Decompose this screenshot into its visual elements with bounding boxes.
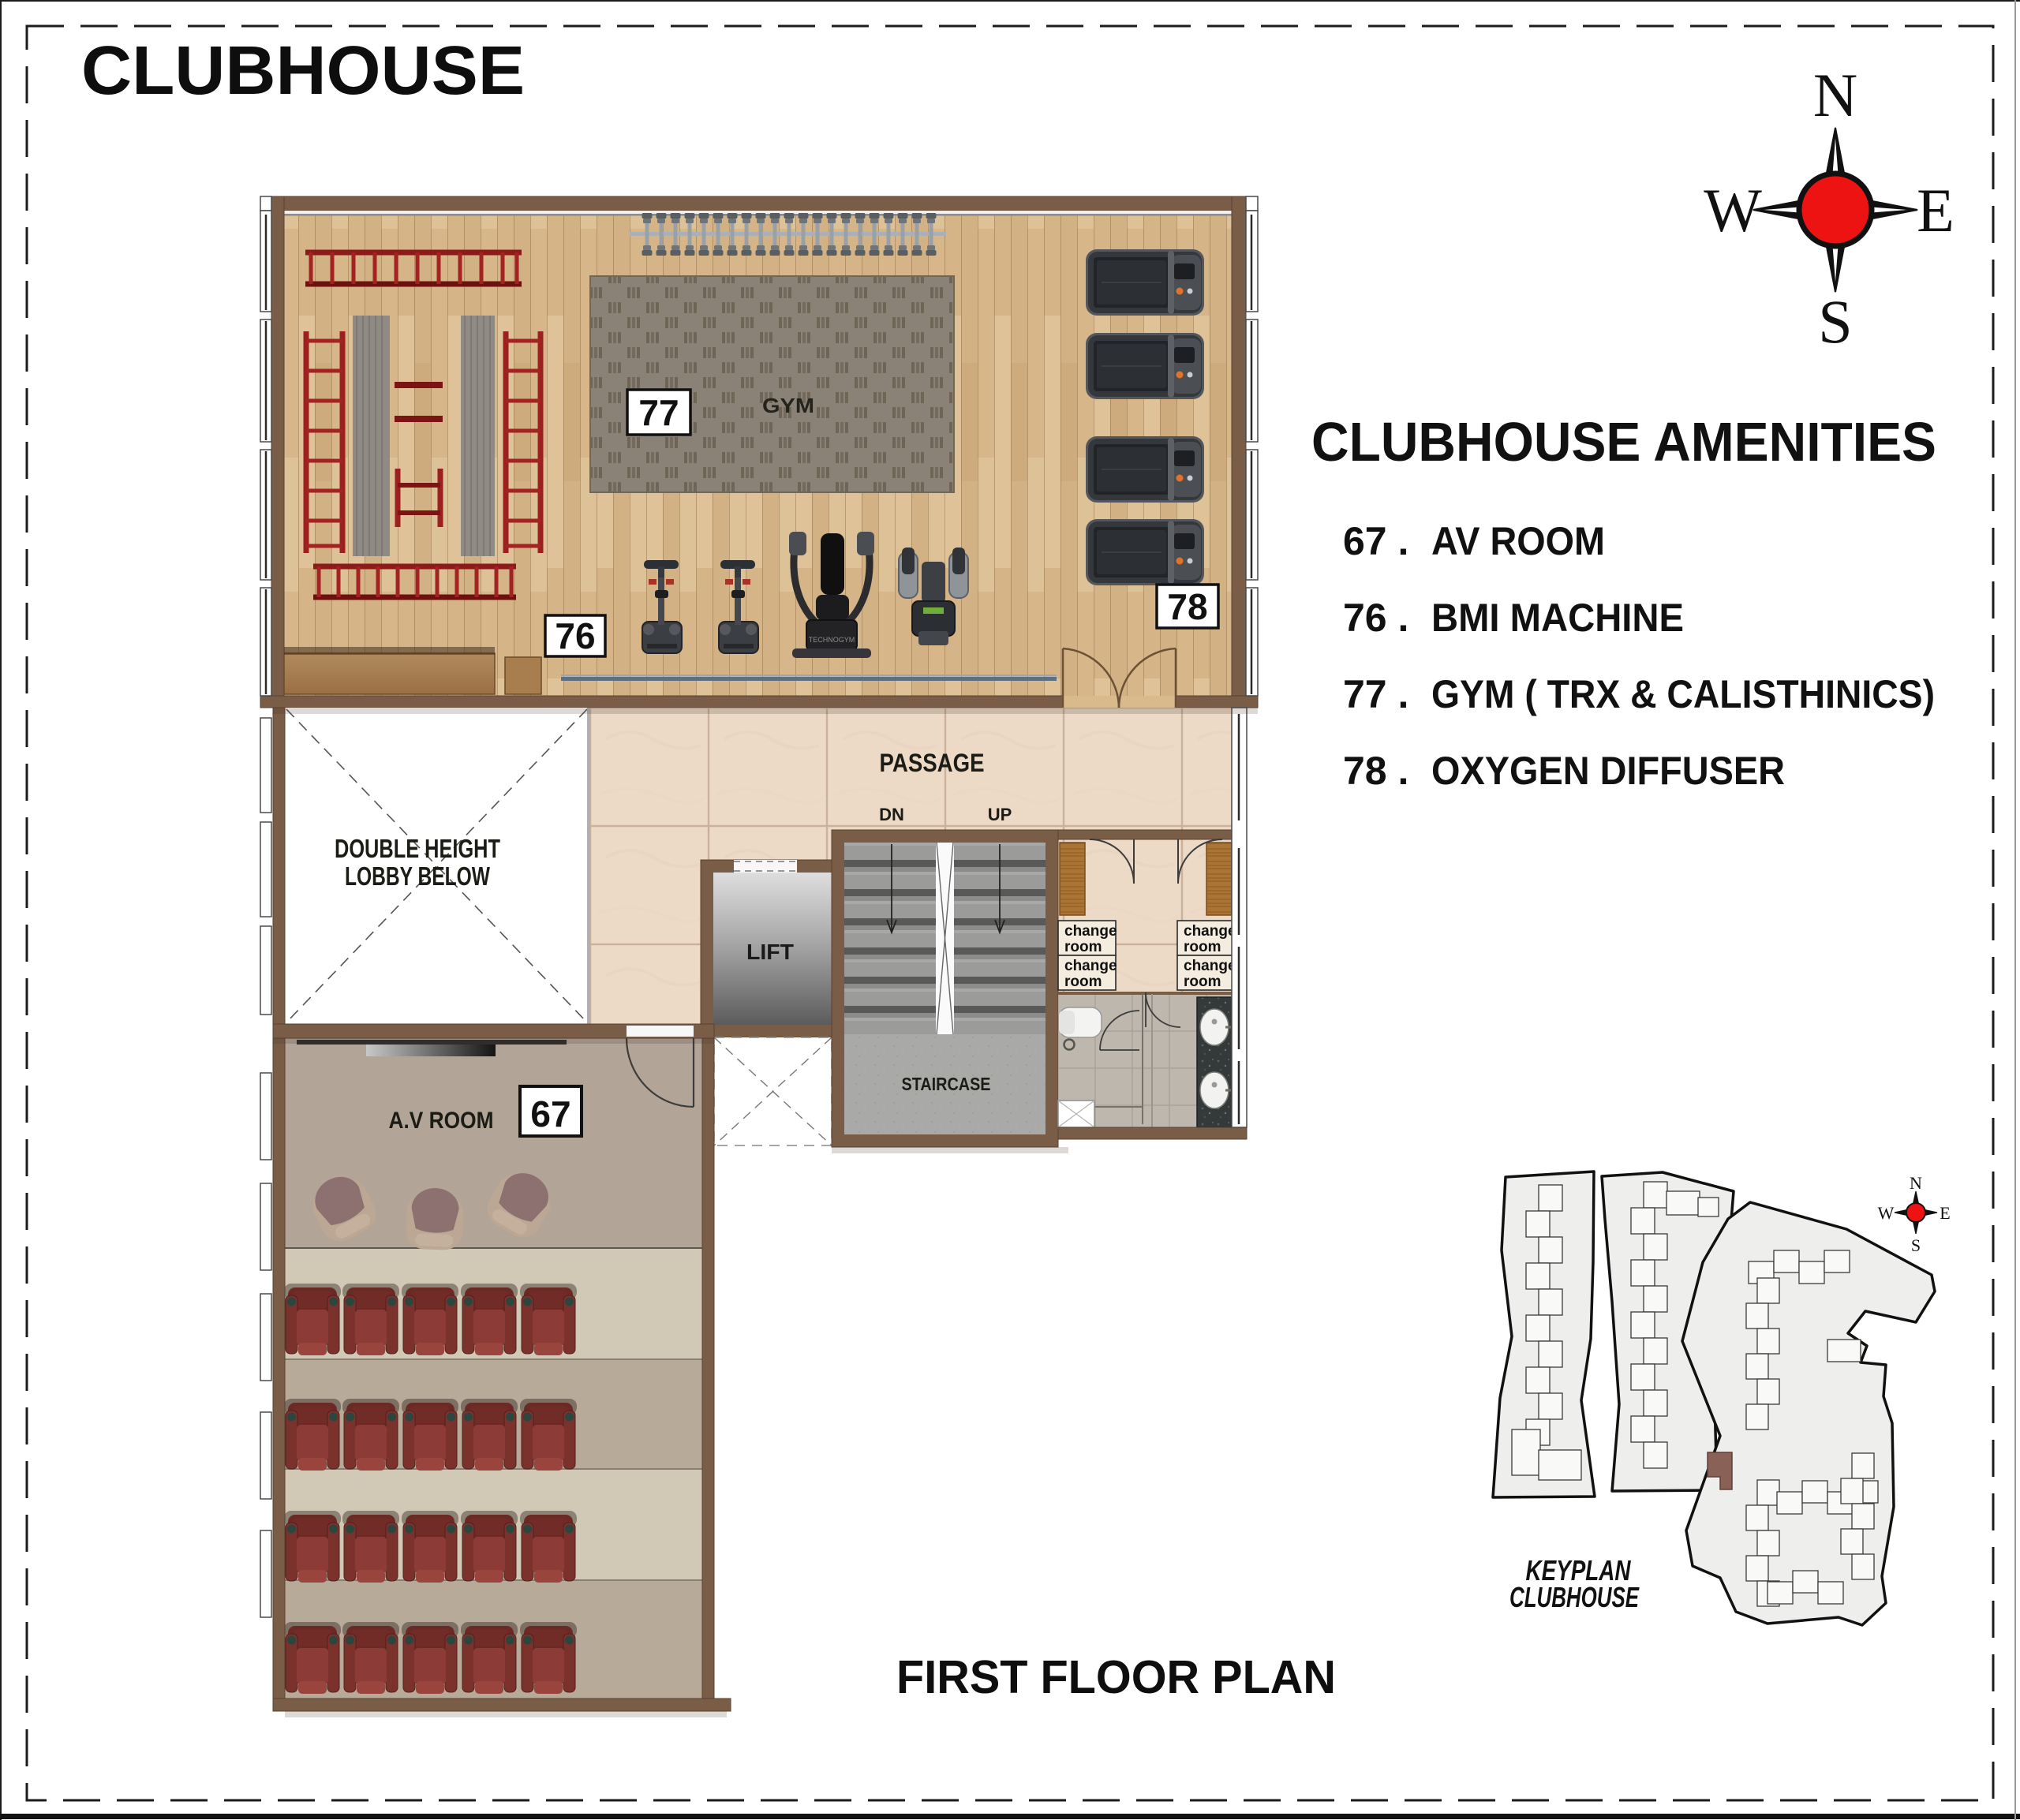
svg-text:GYM ( TRX & CALISTHINICS): GYM ( TRX & CALISTHINICS) (1431, 672, 1935, 716)
svg-text:room: room (1064, 974, 1102, 990)
svg-text:FIRST FLOOR PLAN: FIRST FLOOR PLAN (896, 1651, 1336, 1703)
svg-text:LIFT: LIFT (746, 940, 794, 964)
svg-text:77 .: 77 . (1343, 672, 1408, 716)
svg-text:DOUBLE HEIGHT: DOUBLE HEIGHT (335, 834, 500, 863)
svg-text:change: change (1184, 923, 1236, 940)
svg-text:STAIRCASE: STAIRCASE (902, 1074, 991, 1094)
svg-text:A.V ROOM: A.V ROOM (389, 1108, 494, 1134)
svg-text:E: E (1917, 176, 1955, 245)
svg-text:BMI MACHINE: BMI MACHINE (1431, 596, 1684, 640)
svg-text:change: change (1184, 958, 1236, 974)
svg-text:76 .: 76 . (1343, 596, 1408, 640)
svg-text:TECHNOGYM: TECHNOGYM (809, 636, 855, 644)
svg-text:N: N (1910, 1173, 1922, 1193)
svg-text:room: room (1184, 974, 1221, 990)
svg-text:76: 76 (555, 615, 595, 656)
svg-text:change: change (1064, 923, 1117, 940)
svg-text:GYM: GYM (762, 394, 814, 417)
svg-text:S: S (1911, 1235, 1921, 1255)
svg-text:E: E (1940, 1203, 1950, 1223)
svg-text:AV ROOM: AV ROOM (1431, 519, 1605, 563)
svg-text:DN: DN (879, 805, 904, 824)
svg-text:78 .: 78 . (1343, 749, 1408, 793)
svg-text:LOBBY BELOW: LOBBY BELOW (345, 861, 491, 891)
svg-text:67 .: 67 . (1343, 519, 1408, 563)
svg-text:UP: UP (988, 805, 1012, 824)
svg-text:PASSAGE: PASSAGE (880, 749, 985, 777)
svg-text:CLUBHOUSE: CLUBHOUSE (1509, 1581, 1640, 1613)
svg-text:N: N (1813, 61, 1857, 129)
svg-text:S: S (1818, 287, 1852, 356)
svg-text:67: 67 (530, 1093, 570, 1134)
svg-text:CLUBHOUSE: CLUBHOUSE (81, 32, 525, 109)
svg-text:room: room (1064, 939, 1102, 955)
svg-text:W: W (1704, 176, 1762, 245)
svg-text:78: 78 (1167, 586, 1207, 627)
svg-text:CLUBHOUSE AMENITIES: CLUBHOUSE AMENITIES (1311, 411, 1936, 473)
svg-text:W: W (1878, 1203, 1895, 1223)
svg-text:77: 77 (638, 392, 679, 433)
svg-text:change: change (1064, 958, 1117, 974)
svg-text:OXYGEN DIFFUSER: OXYGEN DIFFUSER (1431, 749, 1785, 793)
svg-text:room: room (1184, 939, 1221, 955)
